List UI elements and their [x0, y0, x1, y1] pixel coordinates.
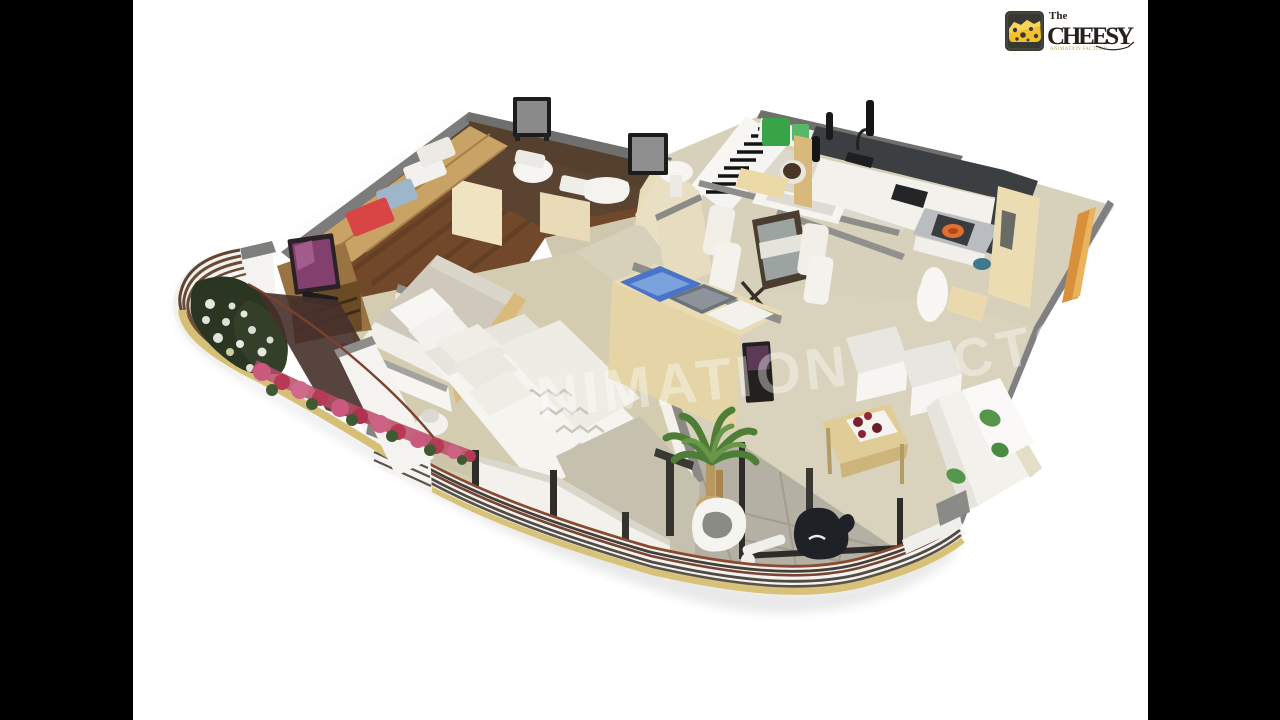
svg-text:The: The — [1049, 10, 1067, 22]
svg-text:CHEESY: CHEESY — [1047, 23, 1134, 50]
